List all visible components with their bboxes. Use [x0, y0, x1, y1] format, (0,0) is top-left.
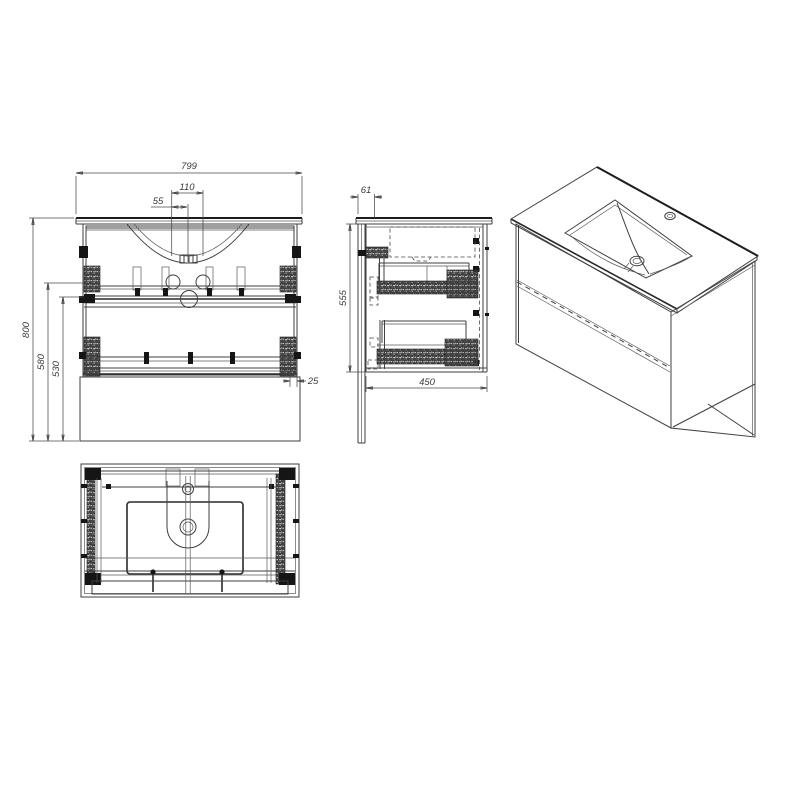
front-lower-panel	[80, 377, 300, 441]
side-view	[356, 218, 492, 443]
dim-depth: 450	[419, 377, 436, 388]
front-mid-rails	[83, 267, 297, 308]
iso-side-panel	[671, 261, 755, 437]
front-view	[76, 218, 302, 441]
dim-tap-half: 55	[153, 196, 164, 207]
technical-drawing: 799 110 55 800 580 530 25	[0, 0, 800, 800]
side-lower-drawer	[368, 320, 478, 369]
isometric-view	[511, 167, 758, 437]
front-bottom-rails	[83, 352, 297, 374]
side-counter-top	[356, 218, 492, 224]
iso-fluted-front	[516, 224, 672, 429]
front-counter-top	[76, 218, 302, 224]
front-dimensions: 799 110 55 800 580 530 25	[21, 161, 319, 441]
top-view	[81, 464, 299, 597]
dim-offset-25: 25	[307, 376, 319, 387]
side-front-bracket	[358, 247, 388, 258]
dim-side-height: 555	[338, 289, 349, 306]
side-front-panel	[358, 224, 365, 443]
dim-height-530: 530	[51, 360, 62, 377]
dim-tap-spacing: 110	[179, 182, 195, 193]
dim-side-inset: 61	[361, 185, 372, 196]
iso-faucet-hole	[665, 212, 675, 219]
dim-front-width: 799	[181, 161, 198, 172]
dim-total-height: 800	[21, 321, 32, 338]
dim-height-580: 580	[36, 353, 47, 370]
side-upper-drawer	[370, 257, 478, 305]
iso-basin	[565, 200, 692, 278]
side-basin-hidden	[390, 227, 475, 261]
